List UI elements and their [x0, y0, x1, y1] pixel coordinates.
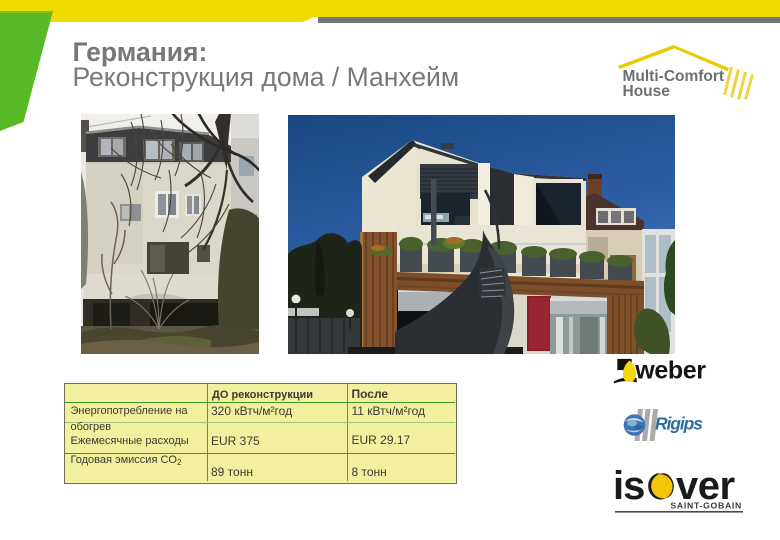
svg-text:is: is: [613, 466, 644, 508]
svg-text:SAINT-GOBAIN: SAINT-GOBAIN: [670, 501, 742, 511]
svg-text:House: House: [623, 83, 671, 100]
svg-text:Rigips: Rigips: [655, 413, 703, 433]
svg-text:weber: weber: [634, 357, 706, 385]
